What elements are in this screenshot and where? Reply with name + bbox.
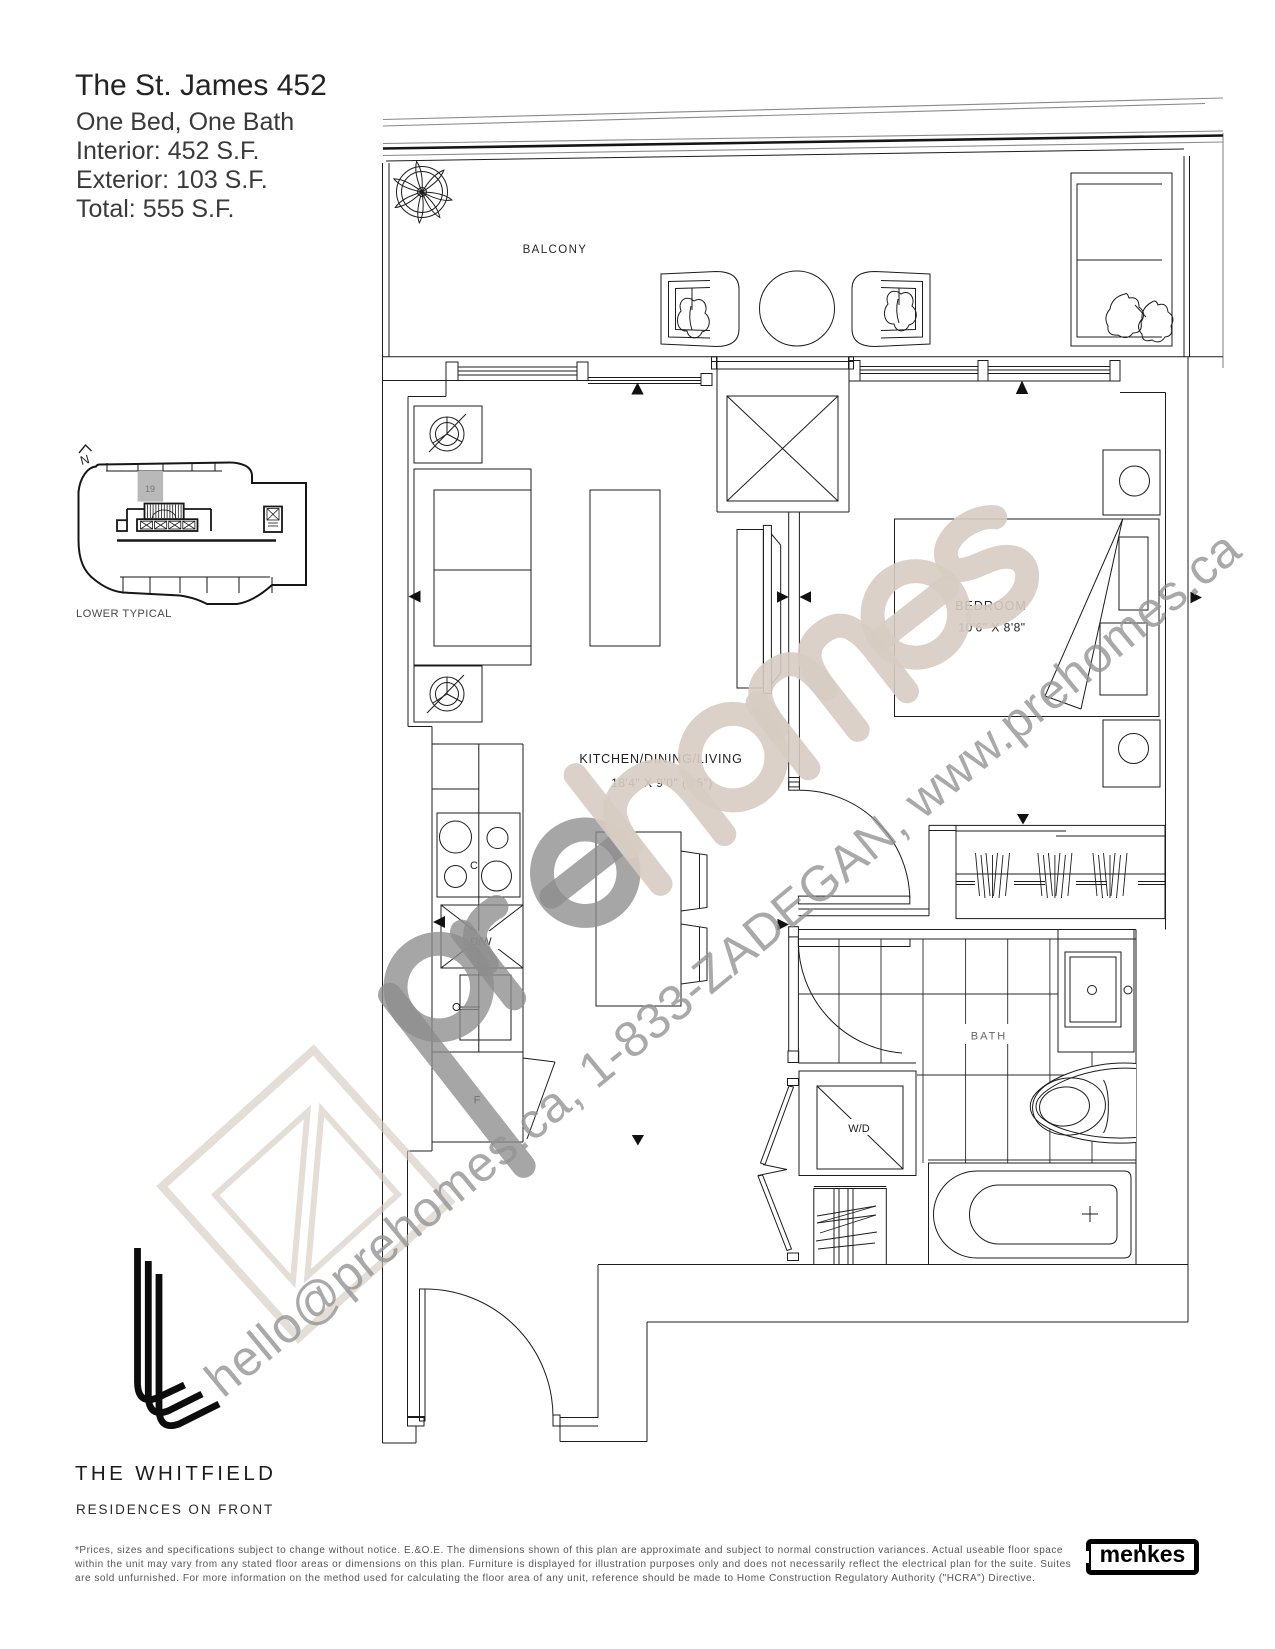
svg-text:LOWER TYPICAL: LOWER TYPICAL	[76, 608, 172, 620]
svg-text:BALCONY: BALCONY	[523, 244, 588, 256]
svg-text:C: C	[470, 860, 478, 872]
svg-text:N: N	[79, 452, 91, 468]
svg-text:19: 19	[145, 484, 155, 494]
svg-text:W/D: W/D	[848, 1123, 869, 1135]
svg-text:hello@prehomes.ca, 1-833-ZADEG: hello@prehomes.ca, 1-833-ZADEGAN, www.pr…	[194, 520, 1251, 1408]
svg-text:BATH: BATH	[971, 1031, 1008, 1043]
